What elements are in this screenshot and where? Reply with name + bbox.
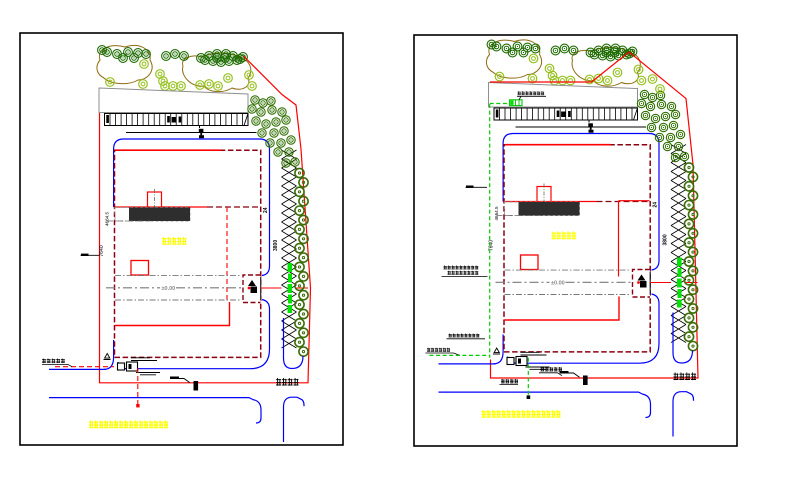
svg-text:3800: 3800 <box>273 240 279 251</box>
svg-text:24: 24 <box>263 207 269 213</box>
svg-text:3800: 3800 <box>663 234 669 245</box>
svg-text:7640: 7640 <box>99 245 105 256</box>
svg-text:±0.00: ±0.00 <box>551 281 565 287</box>
svg-text:4664.5: 4664.5 <box>105 212 110 226</box>
svg-text:4664.5: 4664.5 <box>494 206 499 220</box>
svg-text:±0.00: ±0.00 <box>162 286 176 292</box>
svg-text:24: 24 <box>653 202 659 208</box>
